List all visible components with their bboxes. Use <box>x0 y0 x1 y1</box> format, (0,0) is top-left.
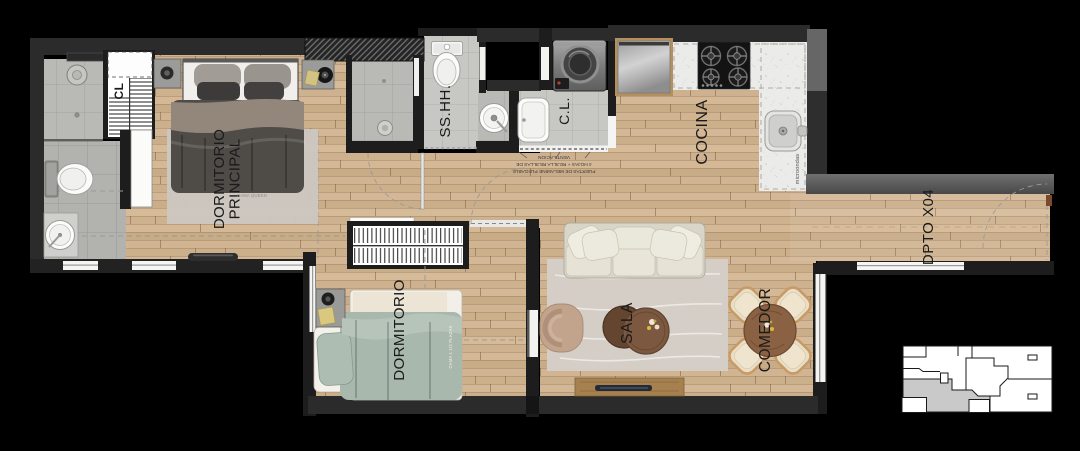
svg-text:DPTO X04: DPTO X04 <box>920 189 937 265</box>
svg-text:COMEDOR: COMEDOR <box>757 288 774 372</box>
svg-text:CL: CL <box>112 83 126 100</box>
svg-text:microondas: microondas <box>795 154 801 184</box>
svg-text:COCINA: COCINA <box>694 99 711 164</box>
svg-text:VENTILACION: VENTILACION <box>537 154 570 160</box>
svg-text:SALA: SALA <box>619 302 636 344</box>
svg-text:PRINCIPAL: PRINCIPAL <box>227 139 244 220</box>
svg-text:PUERTAS DE MELAMINE PLEGABLE: PUERTAS DE MELAMINE PLEGABLE <box>513 168 596 174</box>
svg-text:SS.HH.: SS.HH. <box>437 84 454 137</box>
svg-text:4 HOJAS + REJILLA REJILLAS DE: 4 HOJAS + REJILLA REJILLAS DE <box>516 161 592 167</box>
svg-text:CAMA QUEEN: CAMA QUEEN <box>237 193 267 198</box>
svg-text:DORMITORIO: DORMITORIO <box>391 279 408 380</box>
svg-text:C.L.: C.L. <box>556 97 572 125</box>
svg-text:CAMA 1 1/2 PLAZAS: CAMA 1 1/2 PLAZAS <box>448 326 453 369</box>
svg-text:DORMITORIO: DORMITORIO <box>211 129 228 229</box>
